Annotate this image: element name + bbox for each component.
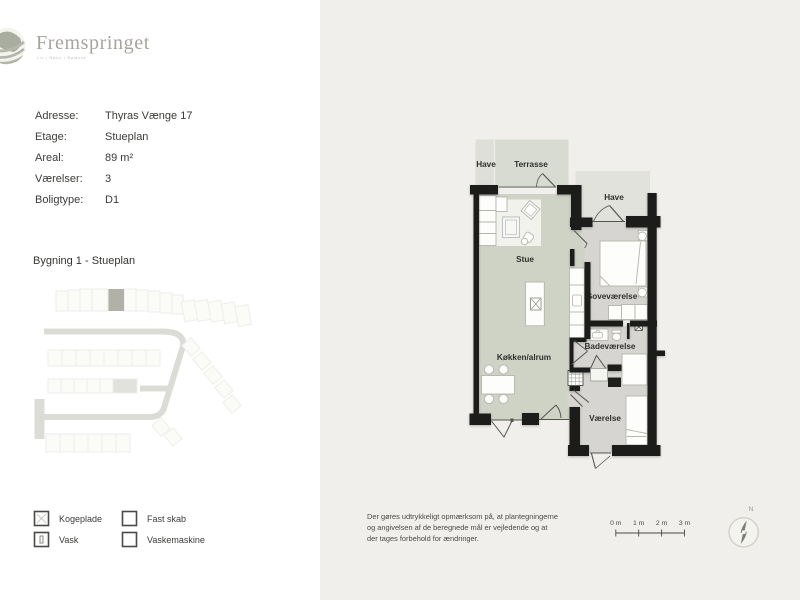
svg-text:Vaskemaskine: Vaskemaskine <box>147 535 205 545</box>
svg-text:Have: Have <box>604 193 624 202</box>
svg-text:0 m: 0 m <box>610 520 622 527</box>
svg-text:Badeværelse: Badeværelse <box>585 342 636 351</box>
svg-text:Værelse: Værelse <box>589 414 621 423</box>
svg-text:Terrasse: Terrasse <box>514 160 548 169</box>
svg-text:N: N <box>749 506 754 513</box>
svg-text:Vask: Vask <box>59 535 79 545</box>
svg-text:2 m: 2 m <box>656 520 668 527</box>
svg-text:Kogeplade: Kogeplade <box>59 514 102 524</box>
svg-text:Fast skab: Fast skab <box>147 514 186 524</box>
svg-text:3 m: 3 m <box>679 520 691 527</box>
svg-text:Stue: Stue <box>516 255 534 264</box>
svg-text:Have: Have <box>476 160 496 169</box>
svg-text:Køkken/alrum: Køkken/alrum <box>497 353 551 362</box>
svg-text:1 m: 1 m <box>633 520 645 527</box>
svg-text:Soveværelse: Soveværelse <box>587 292 638 301</box>
